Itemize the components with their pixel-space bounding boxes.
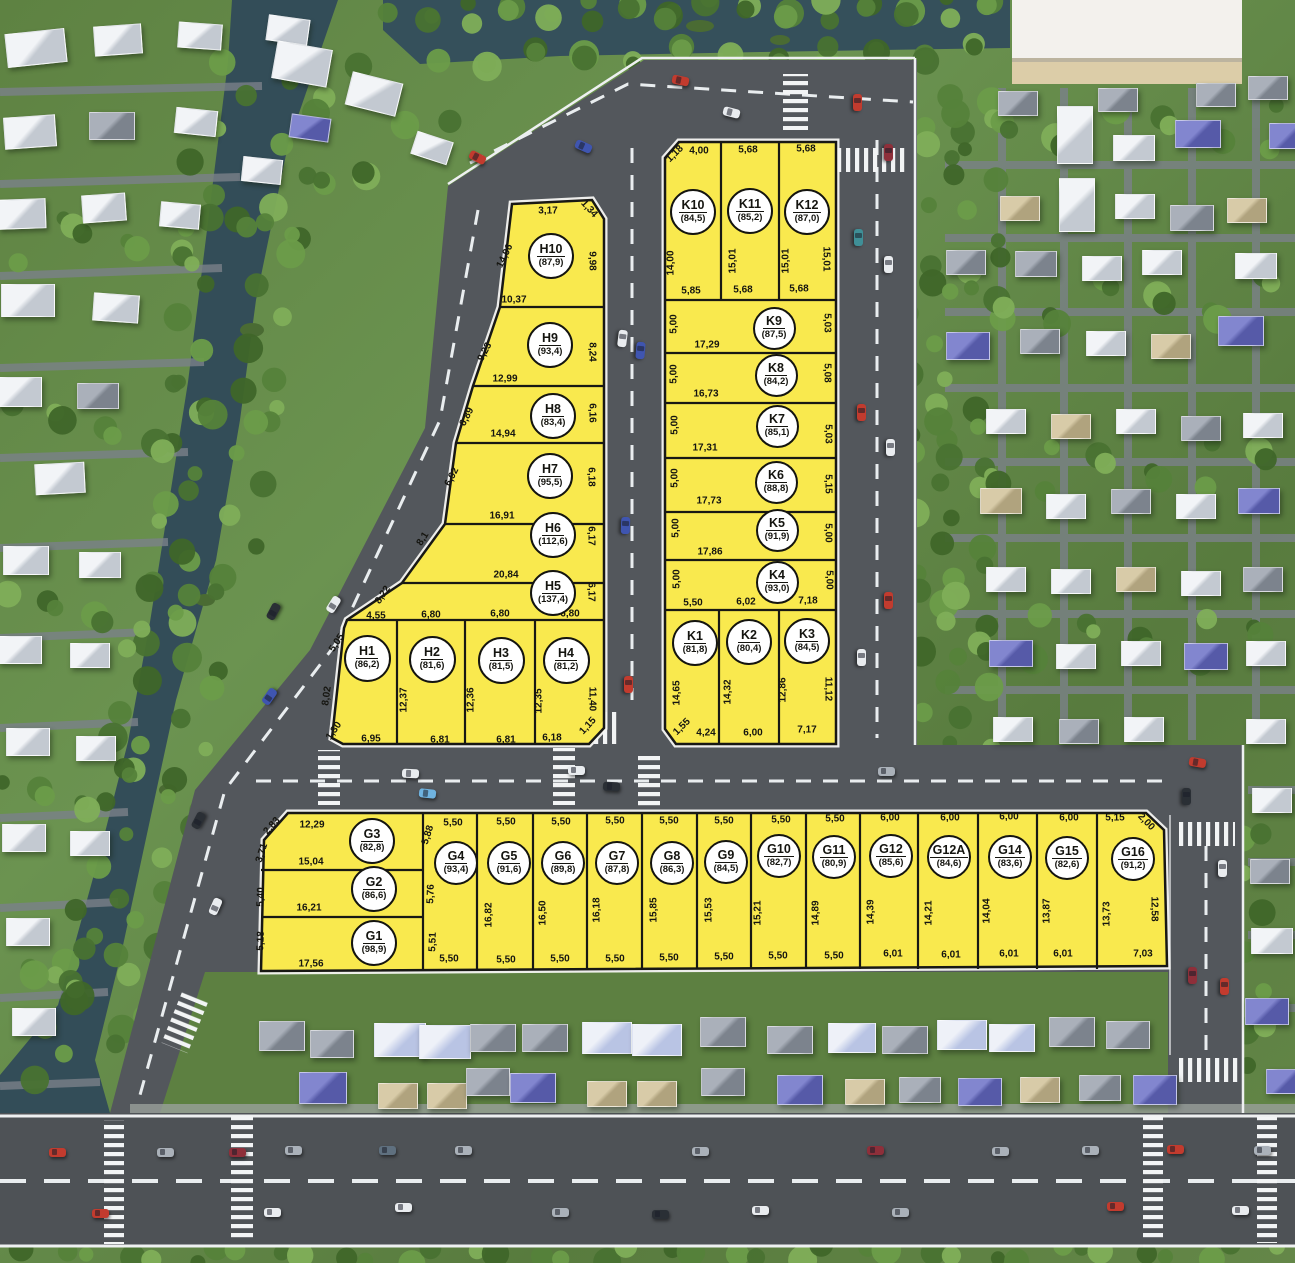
warehouse-building xyxy=(1012,0,1242,84)
scenery-graphics xyxy=(0,0,1295,1263)
site-plan: H10(87,9)H9(93,4)H8(83,4)H7(95,5)H6(112,… xyxy=(0,0,1295,1263)
